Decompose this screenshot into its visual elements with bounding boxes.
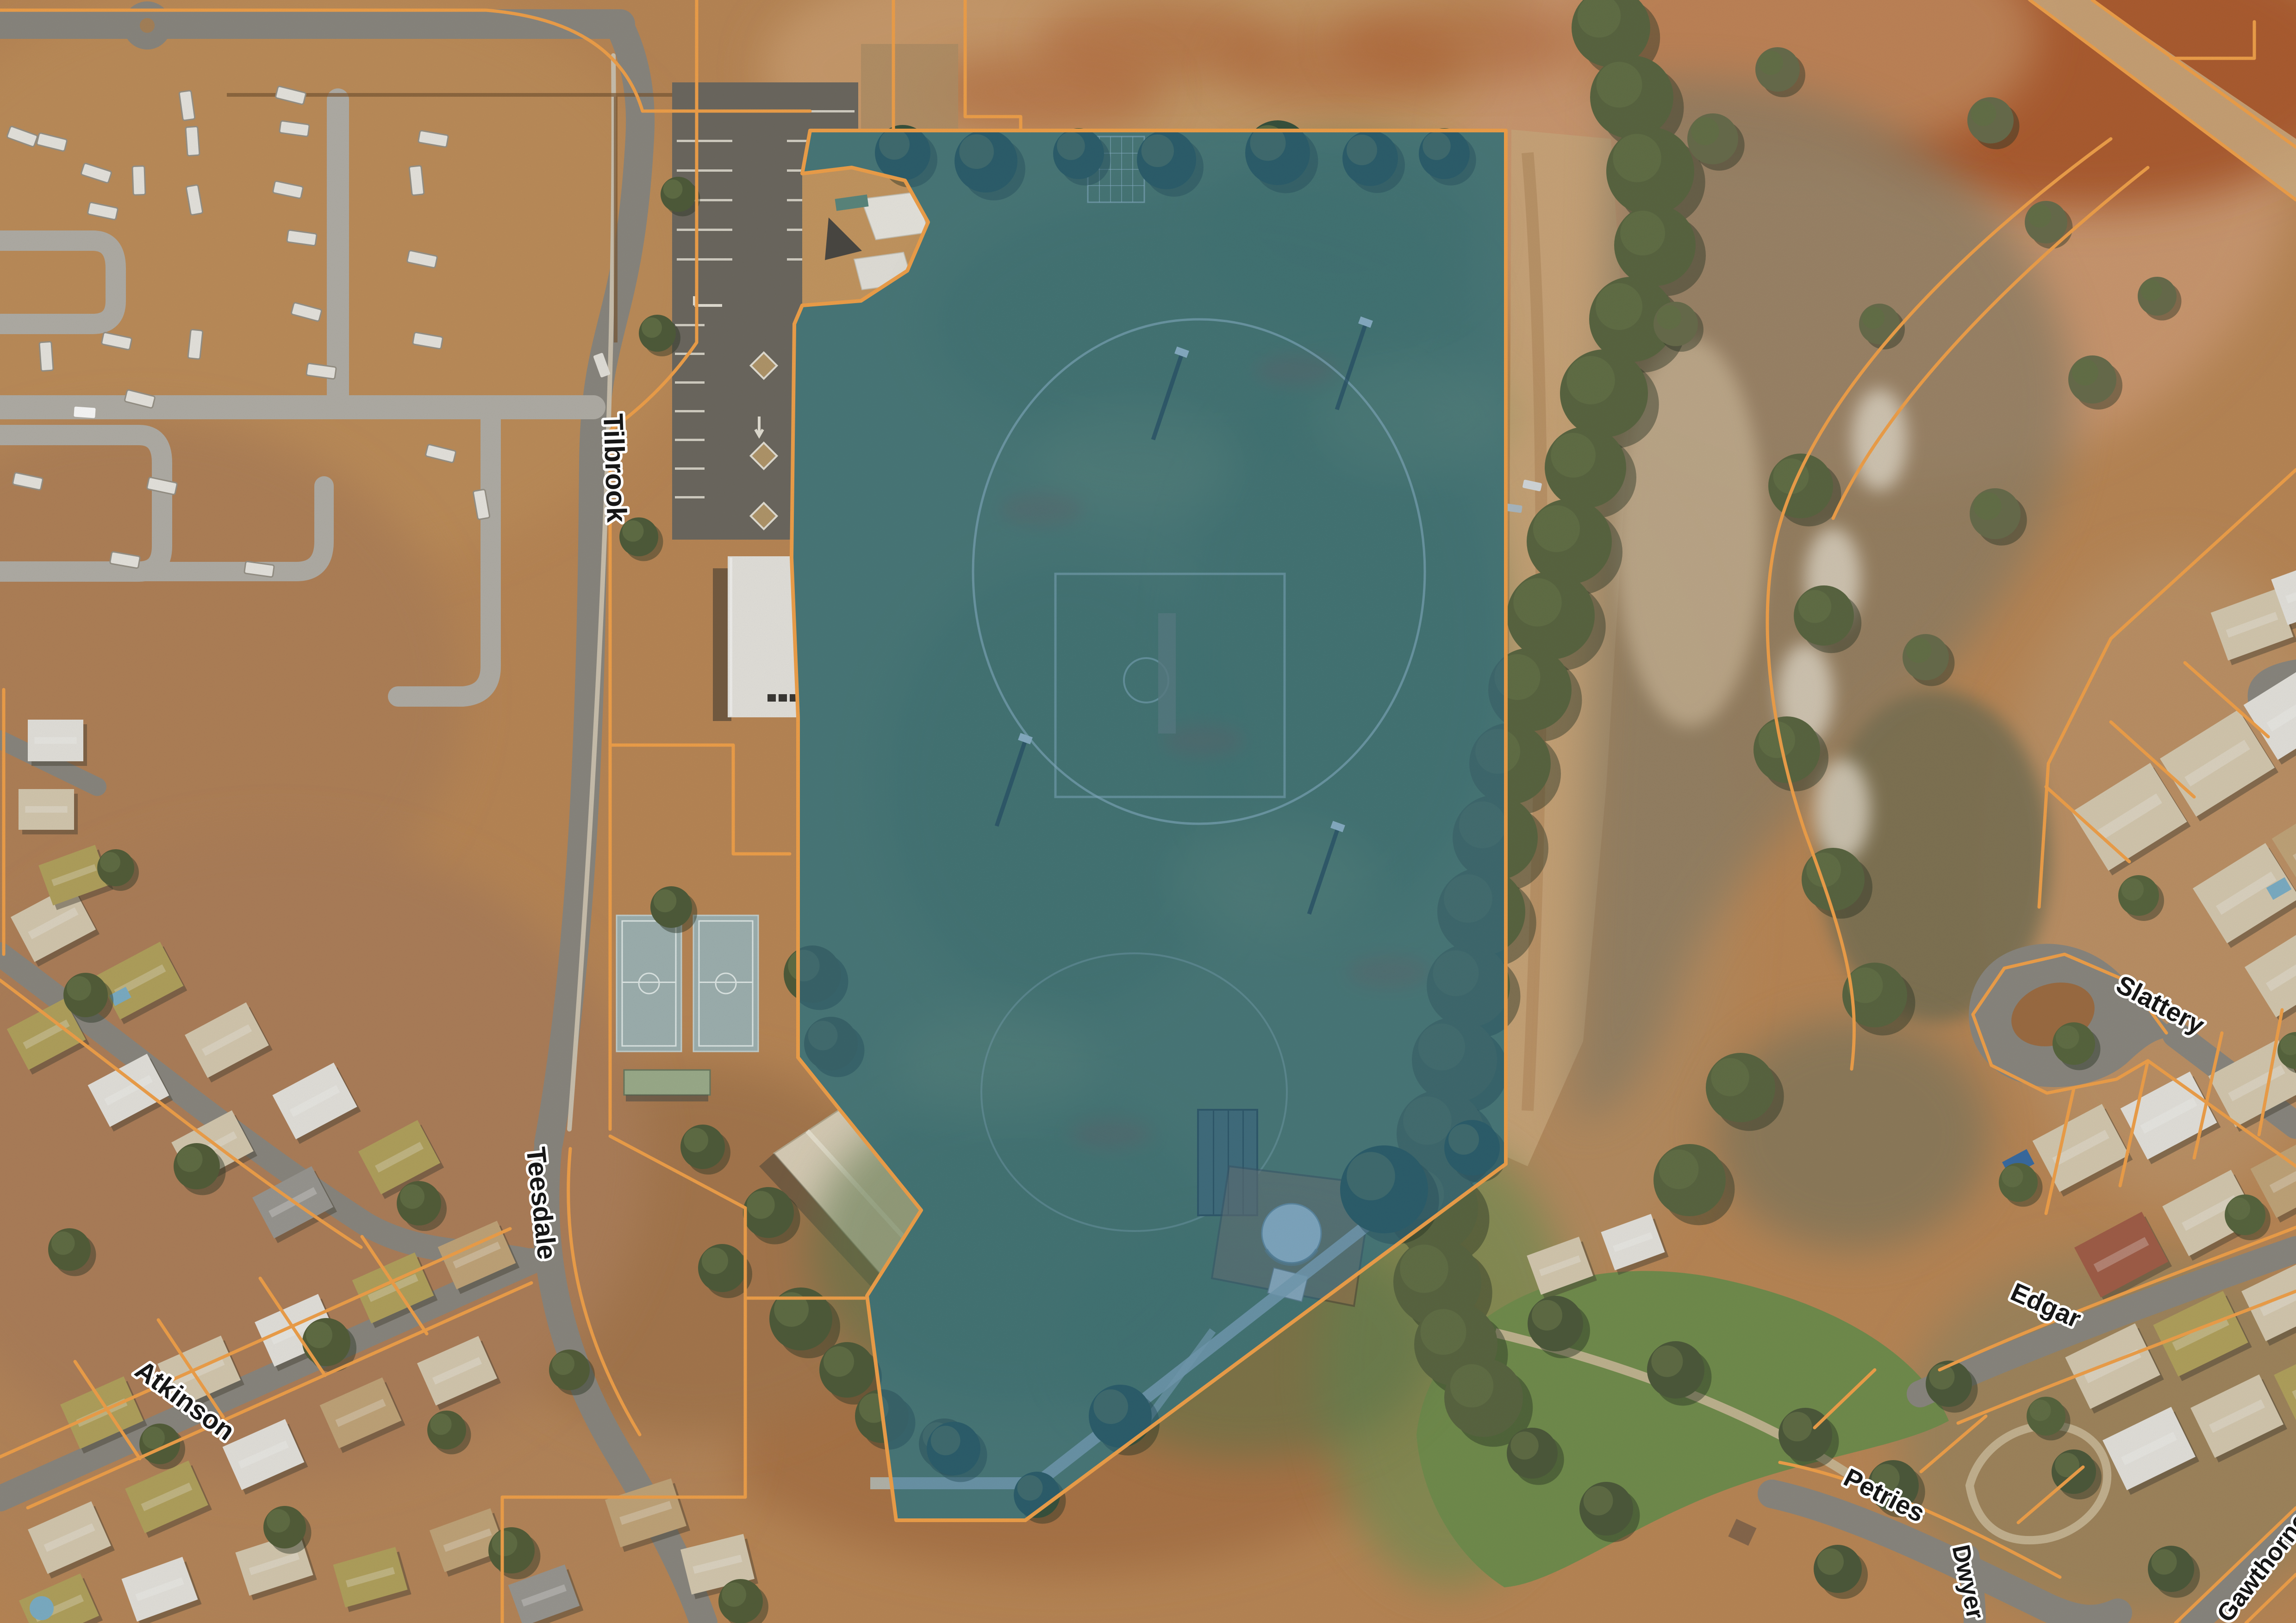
street-label-tilbrook: Tilbrook (598, 413, 632, 523)
aerial-map-canvas[interactable]: TilbrookTeesdaleAtkinsonSlatteryEdgarPet… (0, 0, 2296, 1623)
photo-grain (0, 0, 2296, 1623)
